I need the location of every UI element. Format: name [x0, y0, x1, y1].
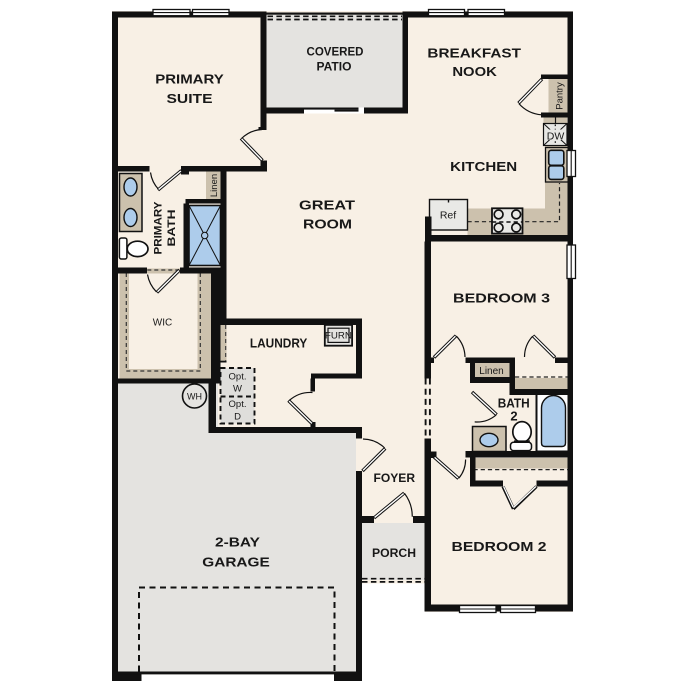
svg-text:W: W	[233, 384, 242, 395]
svg-text:GREAT: GREAT	[299, 198, 355, 213]
svg-text:2: 2	[510, 409, 517, 424]
svg-text:COVERED: COVERED	[307, 45, 364, 59]
svg-text:DW: DW	[547, 131, 565, 143]
svg-text:SUITE: SUITE	[167, 91, 213, 106]
svg-text:PORCH: PORCH	[372, 546, 416, 560]
svg-text:Opt.: Opt.	[229, 399, 247, 410]
svg-text:Opt.: Opt.	[229, 372, 247, 383]
svg-text:ROOM: ROOM	[303, 217, 352, 232]
svg-text:GARAGE: GARAGE	[202, 555, 270, 570]
svg-text:WH: WH	[187, 392, 202, 402]
svg-text:Linen: Linen	[479, 366, 503, 377]
svg-text:Ref: Ref	[440, 210, 456, 222]
svg-text:LAUNDRY: LAUNDRY	[250, 335, 308, 350]
svg-text:Pantry: Pantry	[555, 82, 566, 110]
svg-text:BEDROOM 3: BEDROOM 3	[453, 291, 550, 306]
svg-text:Linen: Linen	[209, 174, 220, 197]
svg-text:PRIMARY: PRIMARY	[153, 201, 165, 255]
svg-text:D: D	[234, 412, 241, 423]
svg-text:2-BAY: 2-BAY	[215, 535, 260, 550]
svg-text:FOYER: FOYER	[374, 471, 416, 485]
svg-text:PATIO: PATIO	[317, 60, 352, 74]
svg-text:BREAKFAST: BREAKFAST	[427, 46, 521, 61]
svg-text:KITCHEN: KITCHEN	[450, 159, 517, 174]
svg-text:PRIMARY: PRIMARY	[155, 72, 224, 87]
svg-text:BATH: BATH	[166, 209, 178, 246]
svg-text:NOOK: NOOK	[452, 64, 497, 79]
svg-text:BEDROOM 2: BEDROOM 2	[452, 539, 547, 554]
svg-text:WIC: WIC	[153, 318, 172, 329]
svg-text:FURN: FURN	[325, 330, 352, 341]
